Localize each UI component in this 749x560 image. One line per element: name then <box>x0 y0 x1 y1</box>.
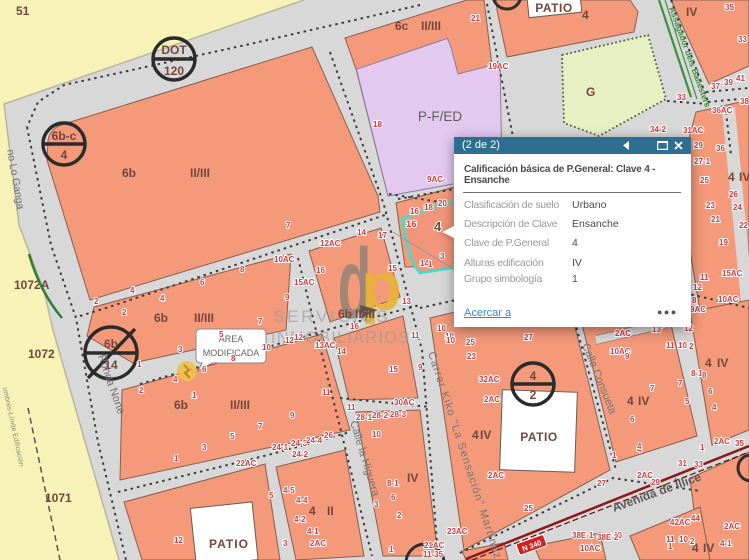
svg-text:120: 120 <box>164 64 184 78</box>
svg-text:II: II <box>327 504 334 518</box>
svg-text:8: 8 <box>231 354 236 363</box>
svg-text:9AC: 9AC <box>690 305 706 314</box>
svg-text:11-35: 11-35 <box>423 550 444 559</box>
svg-text:25: 25 <box>524 504 533 513</box>
svg-text:IV: IV <box>703 541 714 555</box>
svg-text:1: 1 <box>428 260 433 269</box>
svg-text:4-1: 4-1 <box>720 539 732 548</box>
svg-text:38E-2: 38E-2 <box>597 533 619 542</box>
svg-text:51: 51 <box>16 4 30 18</box>
svg-text:27: 27 <box>597 479 606 488</box>
svg-text:10: 10 <box>678 341 687 350</box>
svg-text:6: 6 <box>708 387 713 396</box>
svg-text:42AC: 42AC <box>670 518 691 527</box>
svg-text:33: 33 <box>694 460 703 469</box>
svg-text:3: 3 <box>283 539 288 548</box>
svg-text:3: 3 <box>178 345 183 354</box>
svg-text:4: 4 <box>712 403 717 412</box>
svg-text:4-2: 4-2 <box>294 515 306 524</box>
svg-text:15AC: 15AC <box>722 269 743 278</box>
svg-text:19AC: 19AC <box>488 62 509 71</box>
svg-text:5: 5 <box>219 330 224 339</box>
svg-text:20: 20 <box>438 199 447 208</box>
svg-text:44: 44 <box>691 514 700 523</box>
svg-text:1: 1 <box>612 451 617 460</box>
svg-text:2AC: 2AC <box>484 395 500 404</box>
svg-text:12: 12 <box>174 536 183 545</box>
svg-text:6b: 6b <box>338 307 352 321</box>
svg-text:39: 39 <box>724 78 733 87</box>
svg-text:1: 1 <box>668 542 673 551</box>
svg-text:6: 6 <box>202 365 207 374</box>
svg-text:11: 11 <box>347 403 356 412</box>
svg-text:26: 26 <box>729 190 738 199</box>
svg-text:21: 21 <box>711 215 720 224</box>
svg-text:31: 31 <box>678 459 687 468</box>
svg-text:36: 36 <box>716 144 725 153</box>
svg-text:30AC: 30AC <box>394 398 415 407</box>
svg-text:6c: 6c <box>395 19 409 33</box>
svg-text:3: 3 <box>202 443 207 452</box>
svg-text:6b: 6b <box>122 166 136 180</box>
svg-text:2: 2 <box>689 342 694 351</box>
svg-text:4: 4 <box>582 8 589 22</box>
svg-text:II/III: II/III <box>230 398 250 412</box>
svg-text:6b-c: 6b-c <box>52 129 77 143</box>
svg-text:4-4: 4-4 <box>296 496 308 505</box>
svg-text:41: 41 <box>736 74 745 83</box>
svg-text:9: 9 <box>418 363 423 372</box>
svg-text:8: 8 <box>692 296 697 305</box>
svg-text:6b: 6b <box>154 311 168 325</box>
svg-text:6: 6 <box>391 493 396 502</box>
svg-text:9: 9 <box>625 352 630 361</box>
svg-text:4: 4 <box>434 219 442 234</box>
svg-text:2: 2 <box>397 511 402 520</box>
svg-text:2: 2 <box>139 386 144 395</box>
svg-text:5: 5 <box>685 397 690 406</box>
svg-text:28-3: 28-3 <box>390 410 407 419</box>
svg-text:24-4: 24-4 <box>306 436 323 445</box>
svg-text:8: 8 <box>240 265 245 274</box>
svg-text:IV: IV <box>686 5 697 19</box>
svg-text:1: 1 <box>700 443 705 452</box>
svg-text:10: 10 <box>446 336 455 345</box>
svg-text:4: 4 <box>130 286 135 295</box>
svg-text:7: 7 <box>258 317 263 326</box>
svg-text:35: 35 <box>725 3 734 12</box>
svg-text:13AC: 13AC <box>315 341 336 350</box>
svg-text:12: 12 <box>294 333 303 342</box>
svg-text:10AC: 10AC <box>580 544 601 553</box>
svg-text:4-5: 4-5 <box>283 486 295 495</box>
svg-text:9AC-: 9AC- <box>427 175 446 184</box>
svg-text:4: 4 <box>309 504 316 518</box>
svg-text:15: 15 <box>389 365 398 374</box>
svg-text:2: 2 <box>690 537 695 546</box>
svg-text:5: 5 <box>269 491 274 500</box>
svg-text:15: 15 <box>388 264 397 273</box>
svg-text:2AC: 2AC <box>488 471 504 480</box>
svg-text:IV: IV <box>480 428 491 442</box>
svg-text:24-1: 24-1 <box>272 443 289 452</box>
svg-text:4: 4 <box>472 428 479 442</box>
svg-text:26: 26 <box>324 431 333 440</box>
svg-text:G: G <box>586 85 595 99</box>
svg-text:4: 4 <box>637 442 642 451</box>
svg-text:16: 16 <box>410 207 419 216</box>
svg-text:37: 37 <box>711 82 720 91</box>
svg-text:1: 1 <box>192 391 197 400</box>
svg-text:25: 25 <box>466 338 475 347</box>
svg-text:28-1: 28-1 <box>356 413 373 422</box>
svg-text:18: 18 <box>424 203 433 212</box>
svg-text:9: 9 <box>290 411 295 420</box>
svg-text:6: 6 <box>630 415 635 424</box>
svg-text:8: 8 <box>702 371 707 380</box>
svg-text:PATIO: PATIO <box>520 430 557 444</box>
svg-text:1072: 1072 <box>28 347 55 361</box>
svg-text:5: 5 <box>230 432 235 441</box>
svg-text:11: 11 <box>700 273 709 282</box>
svg-text:29: 29 <box>651 478 660 487</box>
svg-text:6: 6 <box>200 278 205 287</box>
svg-text:22AC: 22AC <box>236 459 257 468</box>
svg-text:11: 11 <box>666 341 675 350</box>
svg-text:25: 25 <box>700 176 709 185</box>
svg-text:DOT: DOT <box>161 43 187 57</box>
svg-text:7: 7 <box>650 384 655 393</box>
svg-text:IV: IV <box>638 394 649 408</box>
svg-text:33: 33 <box>738 35 747 44</box>
svg-text:24-2: 24-2 <box>292 450 309 459</box>
svg-text:6b: 6b <box>104 337 118 351</box>
svg-text:28-2: 28-2 <box>372 411 389 420</box>
svg-text:IV: IV <box>407 471 418 485</box>
svg-text:32AC: 32AC <box>479 375 500 384</box>
svg-text:16: 16 <box>350 322 359 331</box>
svg-text:IV: IV <box>739 170 749 184</box>
svg-text:33: 33 <box>677 93 686 102</box>
svg-text:4: 4 <box>160 294 165 303</box>
svg-text:10: 10 <box>372 430 381 439</box>
svg-text:1071: 1071 <box>45 491 72 505</box>
svg-text:4: 4 <box>173 375 178 384</box>
svg-text:2AC: 2AC <box>714 437 730 446</box>
svg-text:8-1: 8-1 <box>387 479 399 488</box>
svg-text:11: 11 <box>411 331 420 340</box>
svg-text:22: 22 <box>739 221 748 230</box>
svg-text:2AC: 2AC <box>615 329 631 338</box>
svg-text:1: 1 <box>137 360 142 369</box>
svg-text:19: 19 <box>719 238 728 247</box>
svg-text:4: 4 <box>627 394 634 408</box>
svg-text:10AC: 10AC <box>274 255 295 264</box>
svg-text:4: 4 <box>61 148 68 162</box>
svg-text:II/III: II/III <box>355 307 375 321</box>
svg-text:II/III: II/III <box>421 19 441 33</box>
svg-text:4: 4 <box>705 356 712 370</box>
svg-text:3: 3 <box>374 500 379 509</box>
svg-text:14: 14 <box>337 347 346 356</box>
svg-text:27: 27 <box>524 333 533 342</box>
svg-text:PATIO: PATIO <box>535 1 572 15</box>
svg-text:38: 38 <box>740 97 749 106</box>
svg-text:12: 12 <box>693 283 702 292</box>
svg-text:4: 4 <box>530 369 537 383</box>
svg-text:16: 16 <box>316 266 325 275</box>
svg-text:11: 11 <box>322 388 331 397</box>
svg-text:II/III: II/III <box>190 166 210 180</box>
svg-text:14: 14 <box>357 228 366 237</box>
svg-text:2AC: 2AC <box>310 539 326 548</box>
svg-text:23: 23 <box>706 201 715 210</box>
svg-text:24: 24 <box>733 203 742 212</box>
svg-text:P-F/ED: P-F/ED <box>418 109 463 124</box>
svg-text:23AC: 23AC <box>447 527 468 536</box>
svg-text:1: 1 <box>389 545 394 554</box>
svg-text:6b: 6b <box>174 398 188 412</box>
svg-text:10AC: 10AC <box>718 295 739 304</box>
svg-text:3: 3 <box>440 252 445 261</box>
svg-text:II/III: II/III <box>194 311 214 325</box>
svg-text:17: 17 <box>378 231 387 240</box>
svg-text:7: 7 <box>286 221 291 230</box>
svg-text:10: 10 <box>679 535 688 544</box>
svg-text:7: 7 <box>678 379 683 388</box>
svg-text:12AC: 12AC <box>320 239 341 248</box>
svg-text:2: 2 <box>94 297 99 306</box>
svg-text:16: 16 <box>406 219 417 230</box>
svg-text:IV: IV <box>717 356 728 370</box>
svg-text:36AC: 36AC <box>712 106 733 115</box>
svg-text:31AC: 31AC <box>683 126 704 135</box>
svg-text:2: 2 <box>122 308 127 317</box>
svg-text:15AC: 15AC <box>294 278 315 287</box>
svg-text:4-1: 4-1 <box>307 527 319 536</box>
svg-text:21AC: 21AC <box>424 541 445 550</box>
svg-text:2AC: 2AC <box>724 522 740 531</box>
svg-text:18: 18 <box>373 120 382 129</box>
svg-text:21: 21 <box>471 14 480 23</box>
svg-text:10: 10 <box>262 343 271 352</box>
svg-text:35: 35 <box>735 439 744 448</box>
svg-text:29: 29 <box>694 141 703 150</box>
svg-text:7: 7 <box>258 422 263 431</box>
svg-text:27-1: 27-1 <box>694 157 711 166</box>
svg-text:34-2: 34-2 <box>650 125 667 134</box>
svg-text:2: 2 <box>530 388 537 402</box>
svg-text:PATIO: PATIO <box>209 537 249 551</box>
svg-text:23: 23 <box>467 352 476 361</box>
svg-text:9: 9 <box>285 293 290 302</box>
svg-text:10: 10 <box>437 324 446 333</box>
svg-text:1: 1 <box>174 454 179 463</box>
svg-text:13: 13 <box>402 297 411 306</box>
svg-text:38E-1: 38E-1 <box>572 531 594 540</box>
svg-text:4: 4 <box>728 170 735 184</box>
